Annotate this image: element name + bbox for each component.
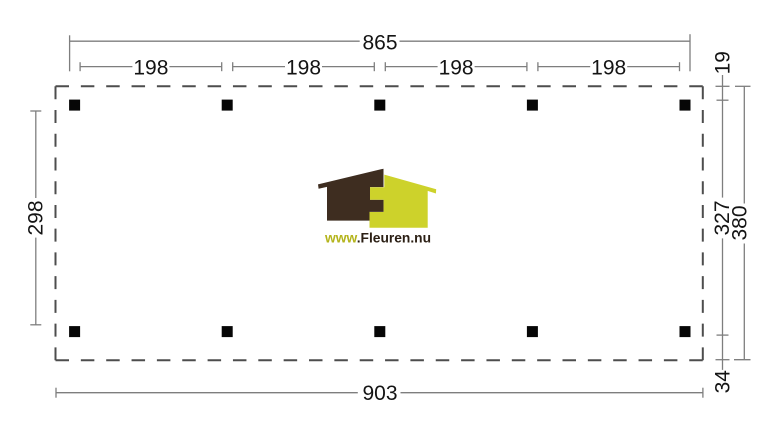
svg-text:198: 198 <box>133 56 168 79</box>
svg-text:19: 19 <box>712 51 735 74</box>
svg-text:www.Fleuren.nu: www.Fleuren.nu <box>324 230 431 245</box>
svg-text:298: 298 <box>25 200 48 235</box>
svg-text:380: 380 <box>728 205 751 240</box>
svg-text:198: 198 <box>286 56 321 79</box>
svg-text:198: 198 <box>439 56 474 79</box>
svg-text:865: 865 <box>362 32 397 55</box>
svg-text:903: 903 <box>362 382 397 405</box>
svg-text:34: 34 <box>712 370 735 394</box>
svg-text:198: 198 <box>591 56 626 79</box>
